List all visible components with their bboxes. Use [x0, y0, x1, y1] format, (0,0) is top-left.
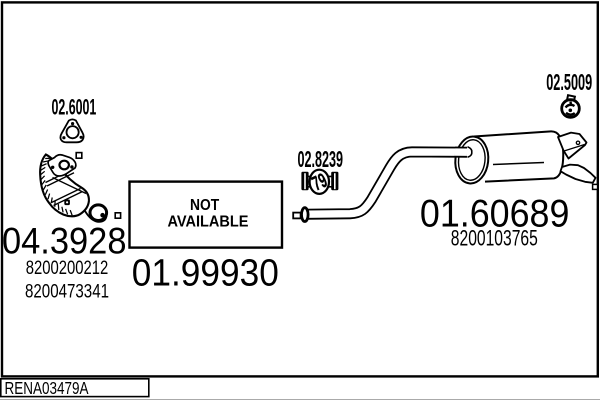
svg-text:02.5009: 02.5009 [546, 69, 592, 95]
svg-text:8200103765: 8200103765 [451, 226, 538, 251]
svg-text:02.6001: 02.6001 [52, 95, 97, 120]
svg-text:NOT: NOT [190, 197, 220, 214]
svg-text:AVAILABLE: AVAILABLE [168, 214, 249, 231]
svg-text:8200473341: 8200473341 [25, 281, 109, 303]
svg-text:RENA03479A: RENA03479A [5, 378, 89, 398]
svg-text:01.99930: 01.99930 [132, 253, 279, 295]
svg-text:04.3928: 04.3928 [2, 220, 127, 262]
svg-text:8200200212: 8200200212 [26, 257, 109, 279]
svg-text:02.8239: 02.8239 [298, 146, 344, 172]
